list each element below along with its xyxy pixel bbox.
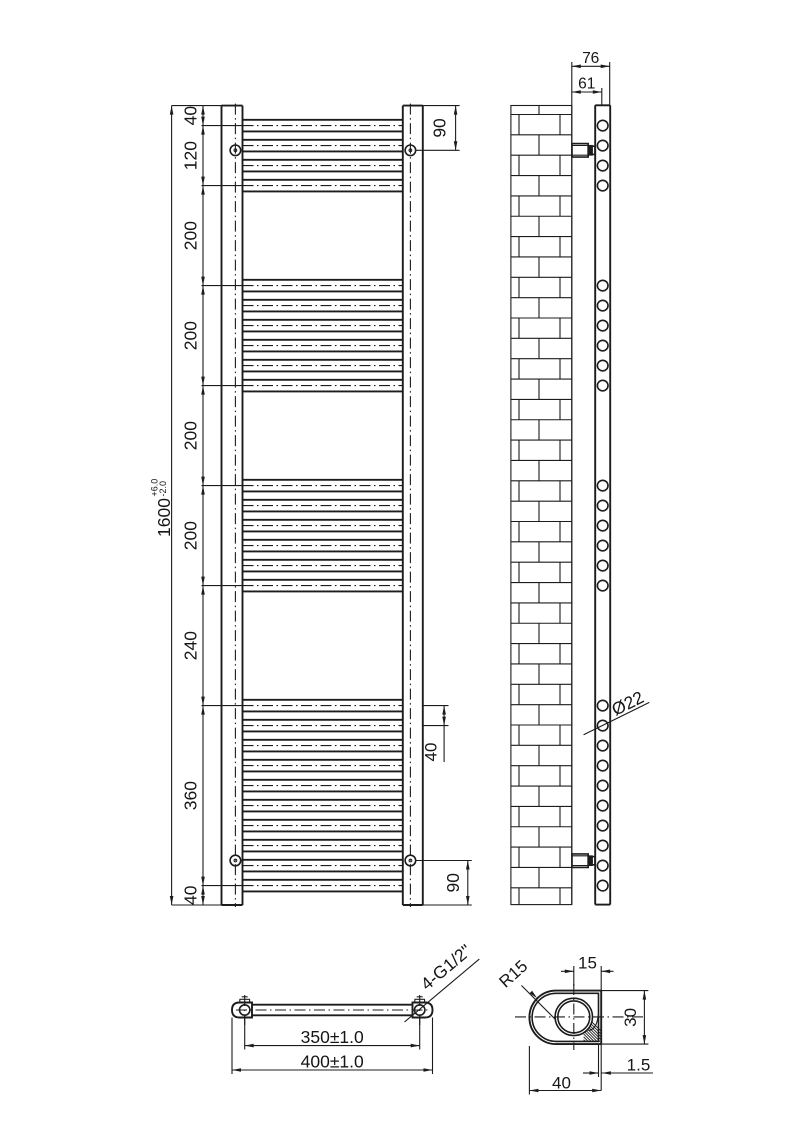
svg-text:1.5: 1.5: [627, 1056, 651, 1075]
svg-text:200: 200: [180, 321, 200, 350]
svg-text:200: 200: [180, 521, 200, 550]
svg-text:350±1.0: 350±1.0: [301, 1027, 364, 1047]
svg-text:-2.0: -2.0: [158, 481, 168, 497]
svg-text:40: 40: [180, 885, 200, 905]
svg-text:120: 120: [180, 141, 200, 170]
svg-text:1600: 1600: [154, 498, 174, 537]
svg-text:200: 200: [180, 421, 200, 450]
svg-text:76: 76: [582, 50, 599, 67]
svg-text:90: 90: [430, 118, 450, 138]
svg-text:360: 360: [180, 781, 200, 810]
svg-text:15: 15: [578, 954, 597, 973]
svg-text:90: 90: [443, 873, 463, 893]
svg-text:40: 40: [422, 743, 441, 762]
svg-text:400±1.0: 400±1.0: [301, 1051, 364, 1071]
svg-text:40: 40: [180, 106, 200, 126]
svg-text:30: 30: [621, 1008, 640, 1027]
svg-text:240: 240: [180, 631, 200, 660]
svg-text:40: 40: [552, 1073, 571, 1092]
svg-text:200: 200: [180, 221, 200, 250]
svg-text:61: 61: [578, 76, 595, 93]
